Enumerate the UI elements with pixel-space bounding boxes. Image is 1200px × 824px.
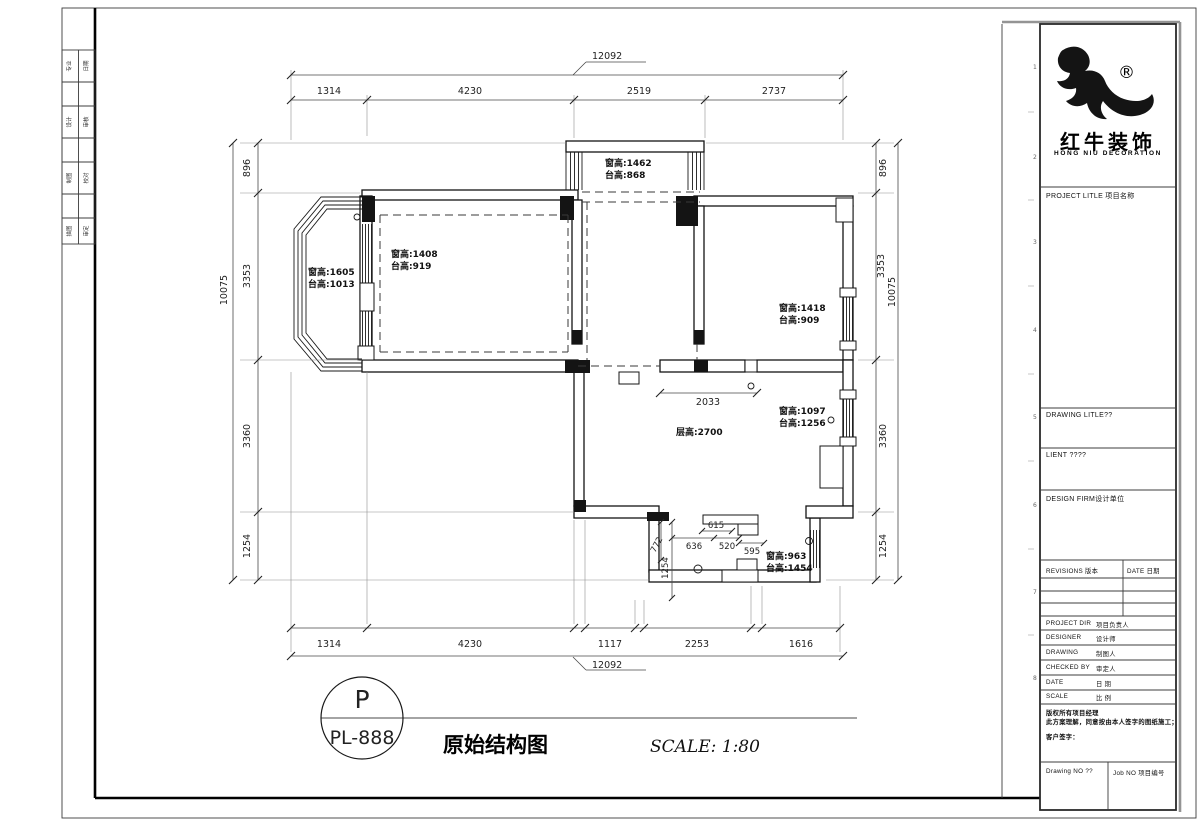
removed-walls (380, 192, 700, 366)
sheet-frame (62, 8, 1196, 818)
dim-interior: 636 (686, 542, 702, 552)
drawing-title: 原始结构图 (443, 733, 548, 757)
row-label-en: DRAWING (1046, 649, 1078, 656)
dim-bottom: 1314 (317, 639, 341, 650)
sign-bar-grid (62, 50, 95, 244)
ruler-mark: 3 (1033, 239, 1037, 246)
window-note: 台高:909 (779, 314, 819, 326)
wall-room1-hall (572, 200, 582, 344)
revision-date-label: DATE 日期 (1127, 566, 1160, 575)
row-label-cn: 制图人 (1096, 649, 1116, 658)
brand-name-en: HONG NIU DECORATION (1040, 150, 1176, 157)
dim-left: 3353 (242, 264, 253, 288)
pipe-symbol (828, 417, 834, 423)
wall-hall-room2 (694, 206, 704, 344)
ruler-mark: 8 (1033, 675, 1037, 682)
window-cap (840, 437, 856, 446)
dim-top: 2519 (627, 86, 651, 97)
dim-left: 1254 (242, 534, 253, 558)
window-note: 窗高:1418 (779, 302, 826, 314)
dim-right: 1254 (878, 534, 889, 558)
dim-top-total: 12092 (592, 51, 622, 62)
row-label-cn: 日 期 (1096, 679, 1111, 688)
window-note: 窗高:963 (766, 550, 806, 562)
row-label-en: PROJECT DIR (1046, 620, 1091, 627)
wall-cap (572, 330, 582, 344)
registered-mark: ® (1118, 63, 1135, 83)
dim-right: 3360 (878, 424, 889, 448)
dim-interior: 2033 (696, 397, 720, 408)
design-firm-label: DESIGN FIRM设计单位 (1046, 494, 1124, 504)
window-note: 窗高:1408 (391, 248, 438, 260)
sign-off-bar: 专业 日期 设计 审核 制图 校对 描图 审定 (62, 50, 95, 244)
pier (647, 512, 669, 521)
sign-cell: 日期 (83, 60, 90, 72)
row-label-cn: 项目负责人 (1096, 620, 1129, 629)
ruler-mark: 4 (1033, 327, 1037, 334)
stamp-letter: P (354, 685, 369, 714)
stamp: P PL-888 原始结构图 SCALE: 1:80 (321, 677, 857, 759)
drawing-title-label: DRAWING LITLE?? (1046, 412, 1112, 419)
east-wall-upper (843, 206, 853, 360)
pier (565, 360, 590, 373)
column (745, 360, 757, 372)
wall-cap (694, 330, 704, 344)
dim-left-total: 10075 (219, 275, 230, 305)
north-wall-left (362, 190, 578, 200)
sign-cell: 设计 (65, 116, 73, 128)
sign-cell: 专业 (65, 60, 73, 72)
dim-top: 2737 (762, 86, 786, 97)
sign-cell: 描图 (65, 225, 73, 237)
dim-bottom: 2253 (685, 639, 709, 650)
door-step (619, 372, 639, 384)
ruler-ticks (1028, 112, 1034, 635)
wall-niche (820, 446, 843, 488)
low-wall (722, 570, 758, 582)
window-note: 台高:868 (605, 169, 645, 181)
east-wall-lower (843, 360, 853, 506)
outer-border (62, 8, 1196, 818)
copyright-line2: 此方案理解，同意按由本人签字的图纸施工； (1046, 717, 1178, 726)
pier (574, 500, 586, 512)
ruler-mark: 1 (1033, 64, 1037, 71)
dim-bottom: 4230 (458, 639, 482, 650)
project-title-label: PROJECT LITLE 项目名称 (1046, 191, 1135, 201)
floor-height-note: 层高:2700 (676, 426, 723, 438)
dim-interior: 1254 (661, 557, 671, 579)
window-note: 窗高:1605 (308, 266, 355, 278)
pier (694, 360, 708, 372)
window-cap (840, 341, 856, 350)
window-cap (840, 288, 856, 297)
row-label-cn: 审定人 (1096, 664, 1116, 673)
row-label-cn: 设计师 (1096, 634, 1116, 643)
low-wall (738, 524, 758, 535)
window-note: 窗高:1097 (779, 405, 826, 417)
window-note: 窗高:1462 (605, 157, 652, 169)
dashed-room1-box (380, 215, 568, 352)
scale-note: SCALE: 1:80 (650, 737, 760, 757)
top-bay-window-left (566, 152, 582, 190)
stamp-number: PL-888 (330, 727, 395, 749)
corner-column (836, 198, 853, 222)
window-note: 台高:1256 (779, 417, 826, 429)
pipe-symbol (354, 214, 360, 220)
window-note: 台高:1013 (308, 278, 355, 290)
row-label-en: CHECKED BY (1046, 664, 1090, 671)
dim-interior: 520 (719, 542, 735, 552)
connector-wall (806, 506, 853, 518)
ruler-mark: 7 (1033, 589, 1037, 596)
sign-cell: 审核 (82, 116, 90, 128)
sign-cell: 审定 (82, 225, 90, 237)
client-label: LIENT ???? (1046, 452, 1086, 459)
ruler-mark: 5 (1033, 414, 1037, 421)
row-label-en: SCALE (1046, 693, 1068, 700)
row-label-cn: 比 例 (1096, 693, 1111, 702)
mid-wall-right-b (757, 360, 843, 372)
window-note: 台高:1454 (766, 562, 813, 574)
dim-left: 3360 (242, 424, 253, 448)
ruler-mark: 6 (1033, 502, 1037, 509)
dim-left: 896 (242, 159, 253, 177)
pier (560, 196, 574, 220)
dim-bottom: 1117 (598, 639, 622, 650)
job-no-label: Job NO 项目编号 (1113, 768, 1165, 777)
row-label-en: DESIGNER (1046, 634, 1081, 641)
mid-wall-left (362, 360, 578, 372)
brand-logo-icon (1057, 47, 1154, 120)
dim-right: 3353 (876, 254, 887, 278)
dim-right: 896 (878, 159, 889, 177)
sign-cell: 校对 (82, 172, 90, 184)
customer-sign-label: 客户签字： (1046, 732, 1079, 741)
top-bay-window-right (688, 152, 704, 190)
piers (362, 196, 708, 521)
walls (360, 141, 853, 582)
dim-interior: 595 (744, 547, 760, 557)
dim-bottom: 1616 (789, 639, 813, 650)
dim-top: 1314 (317, 86, 341, 97)
floor-plan (294, 141, 856, 582)
ruler-mark: 2 (1033, 154, 1037, 161)
dim-bottom-total: 12092 (592, 660, 622, 671)
window-mullion (360, 283, 374, 311)
pipe-symbol (748, 383, 754, 389)
drawing-no-label: Drawing NO ?? (1046, 768, 1093, 775)
floor-plan-canvas: 专业 日期 设计 审核 制图 校对 描图 审定 (0, 0, 1200, 824)
bottom-wall-a (574, 506, 659, 518)
drawing-sheet: 专业 日期 设计 审核 制图 校对 描图 审定 (0, 0, 1200, 824)
sign-cell: 制图 (65, 172, 73, 184)
dim-top: 4230 (458, 86, 482, 97)
north-wall-right (694, 196, 853, 206)
pier (362, 196, 375, 222)
row-label-en: DATE (1046, 679, 1064, 686)
top-bay-wall (566, 141, 704, 152)
dim-interior: 615 (708, 521, 724, 531)
pier (676, 196, 698, 226)
window-note: 台高:919 (391, 260, 431, 272)
dim-right-total: 10075 (887, 277, 898, 307)
copyright-line1: 版权所有项目经理 (1046, 708, 1099, 717)
window-mullion (358, 346, 374, 360)
west-wall-lowroom (574, 372, 584, 506)
window-cap (840, 390, 856, 399)
revisions-label: REVISIONS 版本 (1046, 566, 1098, 575)
